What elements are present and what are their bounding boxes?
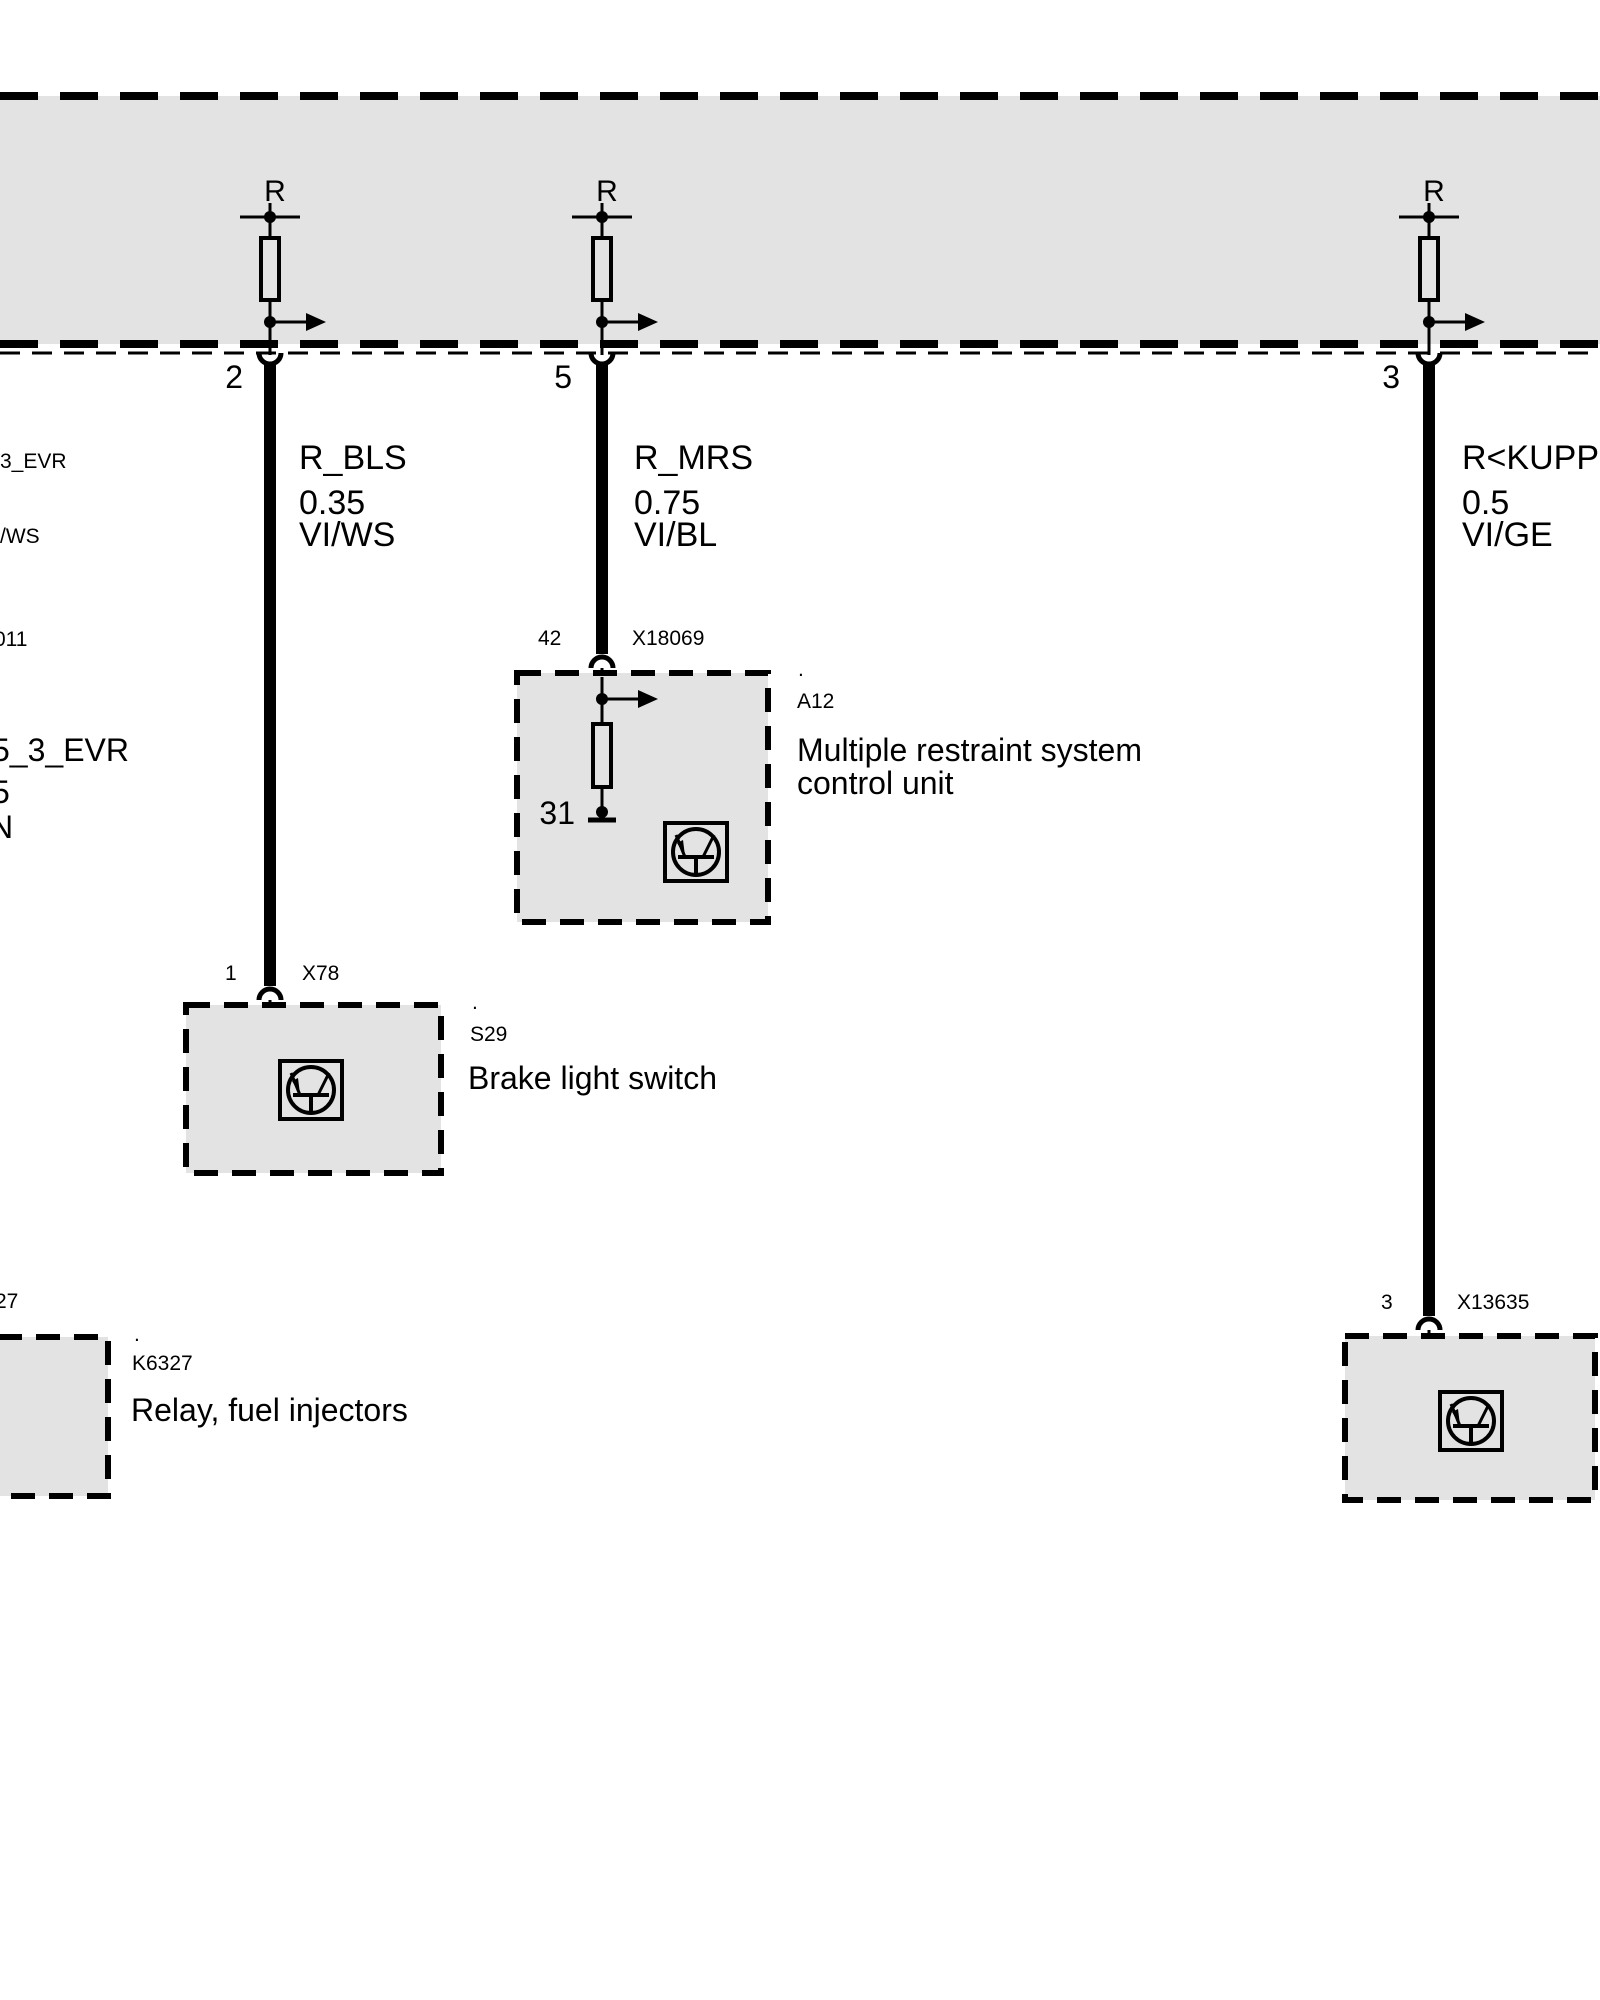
component-ref-a12: A12: [797, 691, 834, 712]
connector-pin-x78: 1: [225, 963, 237, 984]
connector-id-x18069: X18069: [632, 628, 704, 649]
edge-fragment-color: /WS: [0, 526, 40, 547]
edge-fragment-connector: 011: [0, 629, 27, 650]
edge-fragment-relay-pin: 27: [0, 1291, 18, 1312]
component-ref-s29: S29: [470, 1024, 507, 1045]
bus-resistor-label-1: R: [255, 177, 295, 207]
edge-fragment-signal-large: 5_3_EVR: [0, 734, 129, 766]
component-dot-s29: .: [472, 992, 478, 1013]
edge-fragment-color-large: N: [0, 811, 13, 843]
bus-resistor-label-3: R: [1414, 177, 1454, 207]
wire2-cross-section: 0.75: [634, 486, 700, 520]
edge-fragment-size-large: 5: [0, 776, 10, 808]
component-desc-a12-line1: Multiple restraint system: [797, 734, 1142, 766]
power-bus: [0, 96, 1600, 353]
component-desc-s29: Brake light switch: [468, 1062, 717, 1094]
component-desc-a12-line2: control unit: [797, 767, 954, 799]
component-dot-a12: .: [798, 659, 804, 680]
component-box-brake-light-switch: [186, 1005, 441, 1173]
junction-dot: [596, 806, 608, 818]
bus-resistor-label-2: R: [587, 177, 627, 207]
wire2-signal-name: R_MRS: [634, 441, 753, 475]
component-box-relay-fuel-injectors: [0, 1337, 108, 1496]
wire3-color-code: VI/GE: [1462, 518, 1553, 552]
connector-id-x13635: X13635: [1457, 1292, 1529, 1313]
plug-connector-icon: [1418, 1319, 1440, 1330]
connector-pin-x13635: 3: [1381, 1292, 1393, 1313]
connector-pin-x18069: 42: [538, 628, 561, 649]
component-ref-k6327: K6327: [132, 1353, 193, 1374]
wire1-signal-name: R_BLS: [299, 441, 407, 475]
wire3-signal-name: R<KUPPL: [1462, 441, 1600, 475]
bus-fill: [0, 96, 1600, 344]
connector-id-x78: X78: [302, 963, 339, 984]
wire-r-kuppl: [1418, 353, 1440, 1340]
edge-fragment-signal: 3_EVR: [0, 451, 67, 472]
diagram-graphics: [0, 0, 1600, 2000]
wire2-color-code: VI/BL: [634, 518, 717, 552]
wiring-diagram: R R R 2 5 3 R_BLS 0.35 VI/WS R_MRS 0.75 …: [0, 0, 1600, 2000]
mrs-internal-pin-31: 31: [535, 797, 575, 829]
component-dot-k6327: .: [134, 1324, 140, 1345]
bus-pin-wire3: 3: [1360, 361, 1400, 393]
wire1-color-code: VI/WS: [299, 518, 395, 552]
wire3-cross-section: 0.5: [1462, 486, 1509, 520]
component-desc-k6327: Relay, fuel injectors: [131, 1394, 408, 1426]
bus-pin-wire1: 2: [203, 361, 243, 393]
wire-r-bls: [259, 353, 281, 1009]
component-box-x13635: [1345, 1336, 1595, 1500]
plug-connector-icon: [259, 989, 281, 1000]
wire1-cross-section: 0.35: [299, 486, 365, 520]
wire-r-mrs: [591, 353, 613, 677]
bus-pin-wire2: 5: [532, 361, 572, 393]
plug-connector-icon: [591, 657, 613, 668]
